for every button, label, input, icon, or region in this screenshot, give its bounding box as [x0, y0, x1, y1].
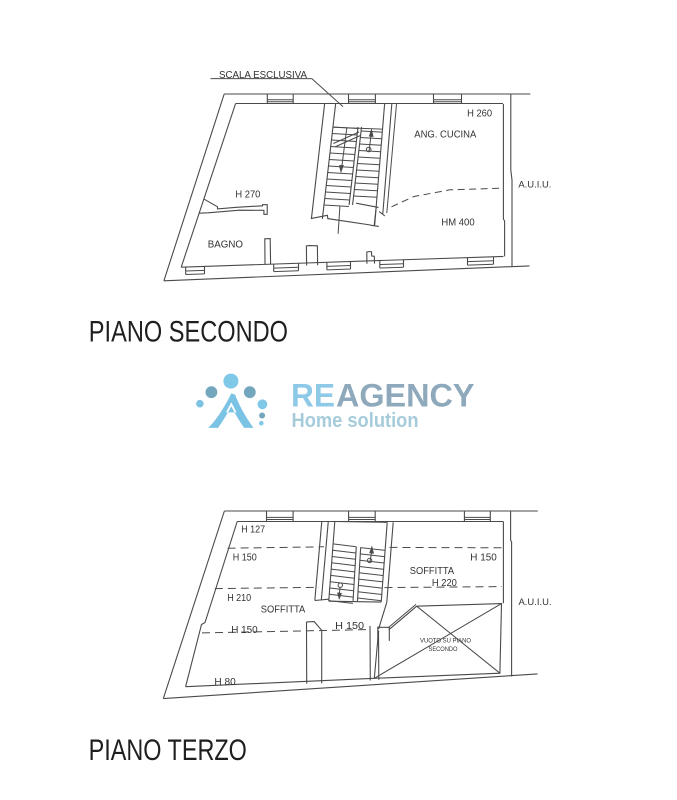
svg-text:H 80: H 80 — [214, 677, 236, 688]
svg-text:H 150: H 150 — [470, 553, 497, 564]
svg-text:H 150: H 150 — [231, 625, 258, 636]
svg-text:H 270: H 270 — [235, 190, 260, 201]
svg-text:SCALA ESCLUSIVA: SCALA ESCLUSIVA — [219, 70, 307, 81]
svg-text:H 150: H 150 — [233, 552, 257, 563]
svg-text:SECONDO: SECONDO — [429, 646, 458, 653]
svg-text:BAGNO: BAGNO — [208, 240, 243, 251]
svg-text:H 220: H 220 — [432, 578, 457, 589]
svg-text:PIANO TERZO: PIANO TERZO — [89, 734, 247, 767]
svg-text:HM 400: HM 400 — [441, 218, 475, 229]
svg-text:H 260: H 260 — [467, 109, 492, 120]
svg-text:H 127: H 127 — [241, 524, 265, 535]
svg-text:RE: RE — [291, 377, 335, 413]
svg-text:A.U.I.U.: A.U.I.U. — [519, 597, 552, 607]
svg-text:SOFFITTA: SOFFITTA — [261, 605, 306, 616]
svg-text:Home solution: Home solution — [292, 410, 419, 432]
svg-text:AGENCY: AGENCY — [336, 377, 475, 413]
svg-text:H 150: H 150 — [335, 621, 364, 632]
svg-text:PIANO SECONDO: PIANO SECONDO — [89, 316, 288, 349]
svg-text:H 210: H 210 — [227, 593, 251, 604]
svg-text:SOFFITTA: SOFFITTA — [410, 566, 455, 577]
svg-text:A.U.I.U.: A.U.I.U. — [518, 180, 551, 190]
svg-text:ANG. CUCINA: ANG. CUCINA — [414, 130, 476, 141]
svg-text:VUOTO SU PIANO: VUOTO SU PIANO — [420, 638, 471, 645]
